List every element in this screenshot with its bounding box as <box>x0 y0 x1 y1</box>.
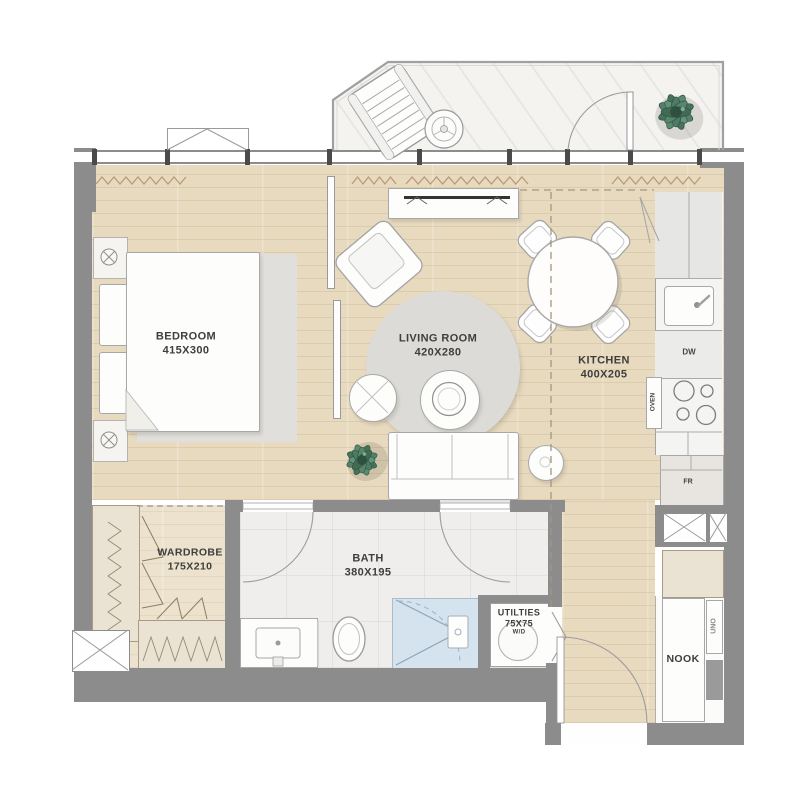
plan-linework <box>0 0 800 800</box>
kitchen-dims: 400X205 <box>578 368 630 382</box>
bath-name: BATH <box>345 552 392 566</box>
nightstand-lamp-bottom <box>101 432 117 448</box>
nook-label: NOOK <box>666 653 699 667</box>
bath-dims: 380X195 <box>345 566 392 580</box>
utilities-name: UTILTIES <box>498 608 541 619</box>
wardrobe-name: WARDROBE <box>157 546 223 560</box>
plant-living <box>339 433 395 488</box>
lounge-chair <box>346 63 441 162</box>
curtain-zigzags <box>96 177 701 184</box>
bedroom-dims: 415X300 <box>156 344 216 358</box>
dining-table <box>528 237 618 327</box>
wardrobe-dims: 175X210 <box>157 560 223 574</box>
floor-plan: BEDROOM 415X300 LIVING ROOM 420X280 KITC… <box>0 0 800 800</box>
nook-unit-label: UNO <box>710 618 717 634</box>
dishwasher-label: DW <box>682 348 695 357</box>
living-room-label: LIVING ROOM 420X280 <box>399 332 477 361</box>
pouf-seams <box>356 381 388 413</box>
fr-text: FR <box>683 479 692 486</box>
uno-text: UNO <box>710 618 717 634</box>
plant-balcony <box>650 88 708 145</box>
kitchen-corner-cabinet-door <box>640 197 659 243</box>
toilet <box>333 617 365 661</box>
side-table-ring <box>540 457 550 467</box>
balcony-side-table <box>425 110 463 148</box>
ac-duct-lines <box>167 129 247 150</box>
kitchen-label: KITCHEN 400X205 <box>578 354 630 383</box>
kitchen-counter-lines <box>655 192 722 470</box>
wardrobe-hangers <box>108 522 222 661</box>
oven-label: OVEN <box>650 393 657 411</box>
utilities-dims: 75X75 <box>498 618 541 629</box>
oven-text: OVEN <box>650 393 657 411</box>
sofa-seams <box>391 434 514 479</box>
cooktop-burners <box>674 381 716 425</box>
coffee-table-rings <box>433 383 466 416</box>
armchair <box>332 218 425 311</box>
utilities-label: UTILTIES 75X75 W/D <box>498 608 541 637</box>
wardrobe-label: WARDROBE 175X210 <box>157 546 223 573</box>
bedroom-name: BEDROOM <box>156 330 216 344</box>
vanity-basin <box>256 620 318 666</box>
bath-label: BATH 380X195 <box>345 552 392 581</box>
nook-name: NOOK <box>666 653 699 665</box>
shower-door <box>396 600 468 665</box>
fridge-label: FR <box>683 479 692 486</box>
kitchen-faucet <box>694 296 709 308</box>
kitchen-name: KITCHEN <box>578 354 630 368</box>
nightstand-lamp-top <box>101 249 117 265</box>
bedroom-label: BEDROOM 415X300 <box>156 330 216 359</box>
utilities-wd: W/D <box>498 629 541 636</box>
dw-text: DW <box>682 348 695 357</box>
bed-fold <box>126 390 158 430</box>
living-room-name: LIVING ROOM <box>399 332 477 346</box>
tv <box>404 196 510 204</box>
living-room-dims: 420X280 <box>399 346 477 360</box>
